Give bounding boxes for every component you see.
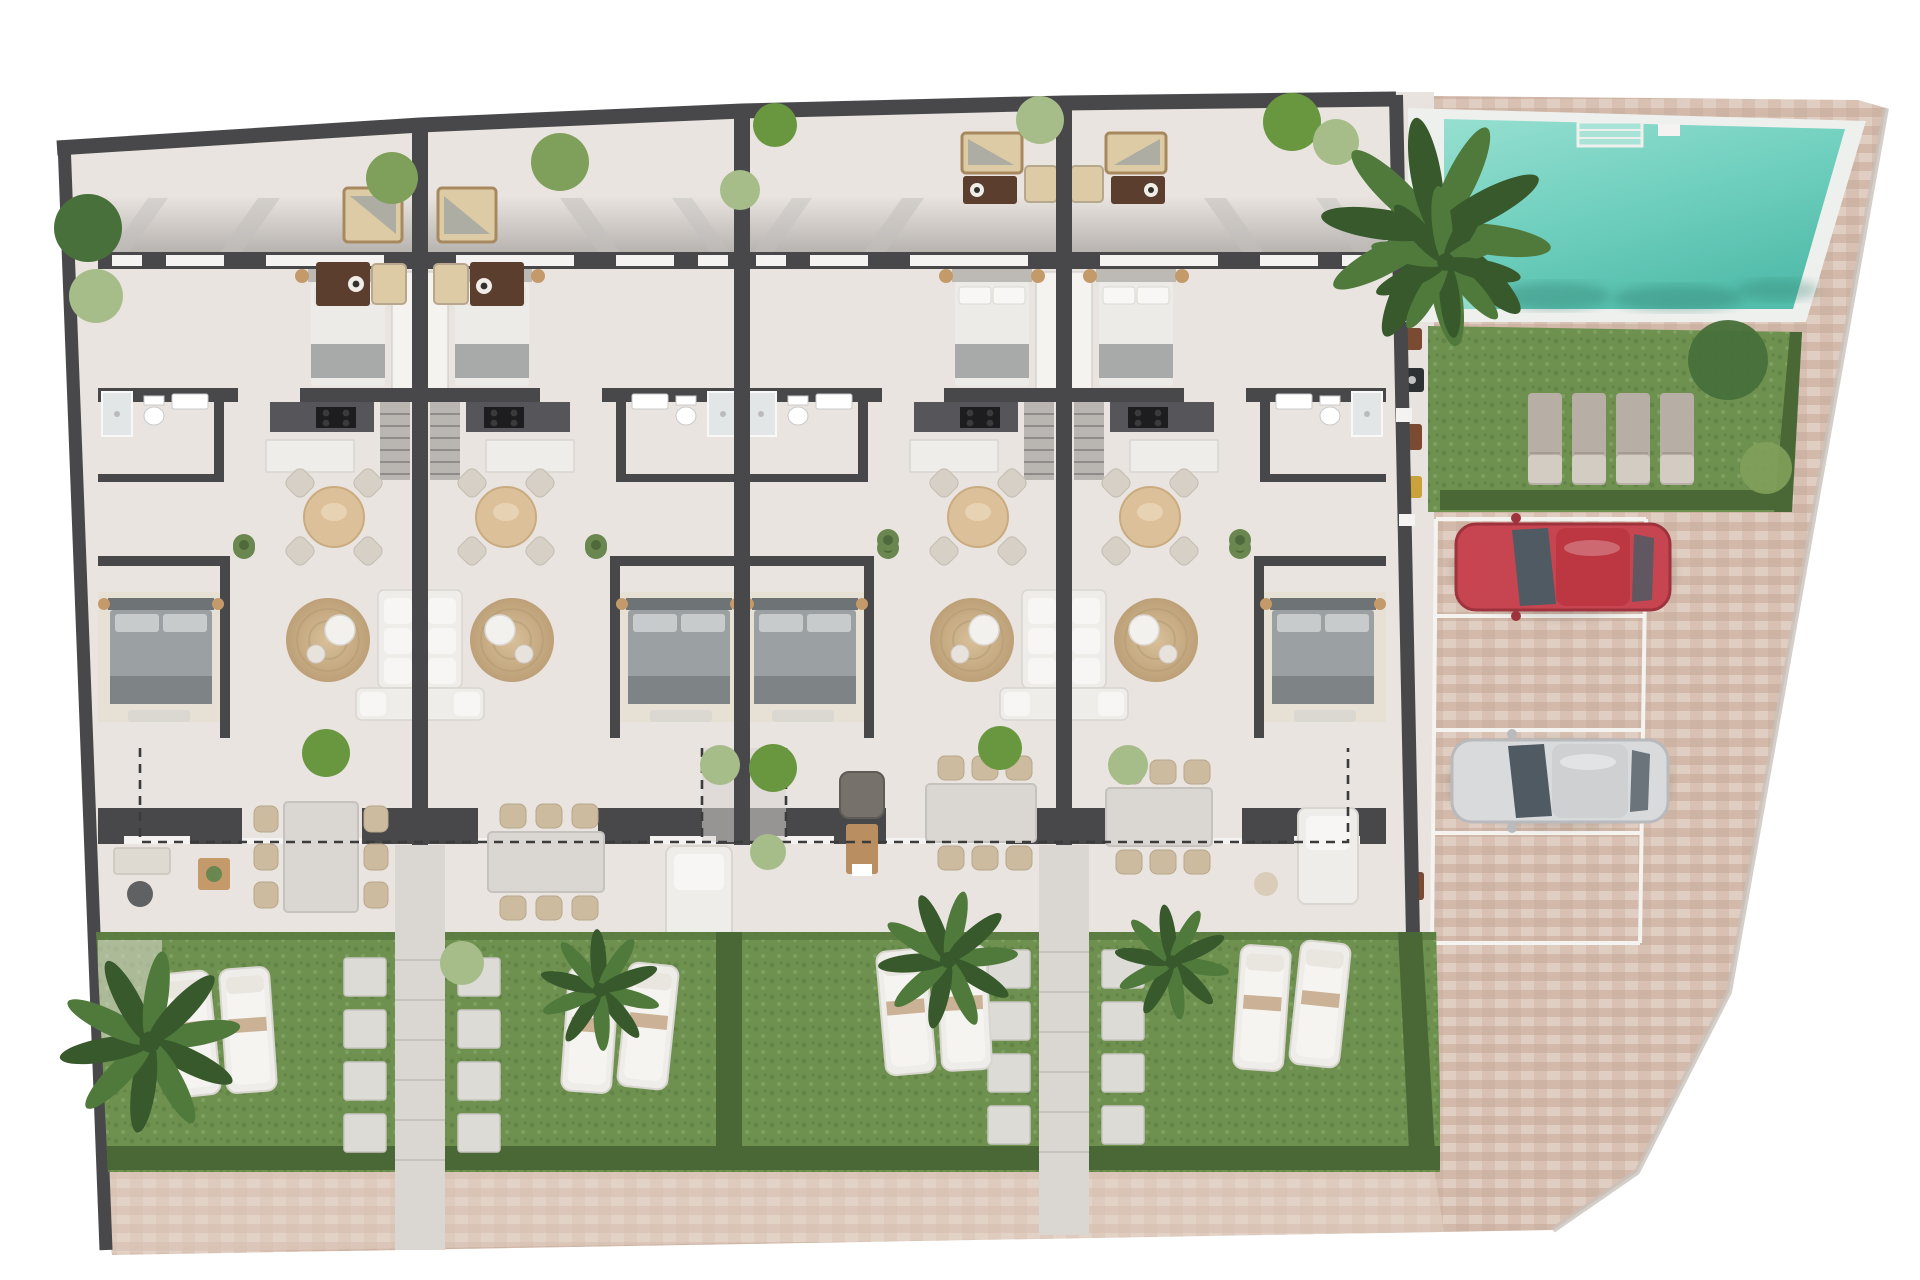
- side-door: [1396, 408, 1412, 422]
- garden-lounger: [1233, 944, 1292, 1071]
- communal-lawn: [1428, 320, 1802, 512]
- entry-path: [1039, 845, 1089, 1235]
- car-red: [1451, 513, 1675, 621]
- pool-lounger: [1660, 393, 1694, 485]
- lawn-bush: [1740, 442, 1792, 494]
- desk-chair: [127, 881, 153, 907]
- pool-lounger: [1572, 393, 1606, 485]
- side-door: [1399, 514, 1415, 526]
- armchair: [840, 772, 884, 818]
- dining-table: [926, 784, 1036, 842]
- round-side-table: [1254, 872, 1278, 896]
- dining-table: [284, 802, 358, 912]
- hedge-bottom: [1440, 490, 1784, 510]
- entry-path: [395, 845, 445, 1250]
- hedge-divider: [716, 932, 742, 1170]
- site-plan-stage: [0, 0, 1920, 1280]
- pool-lounger: [1616, 393, 1650, 485]
- lawn-tree: [1688, 320, 1768, 400]
- building: [40, 85, 1430, 1040]
- floor-plan-canvas: [0, 0, 1920, 1280]
- hedge-bottom: [96, 1146, 1440, 1170]
- pool-steps: [1578, 122, 1642, 146]
- pool-ladder: [1658, 124, 1680, 136]
- dining-table: [1106, 788, 1212, 846]
- gardens: [96, 932, 1440, 1172]
- pool-lounger: [1528, 393, 1562, 485]
- desk: [114, 848, 170, 874]
- brick-walkway: [100, 1168, 1444, 1253]
- car-silver: [1446, 729, 1670, 833]
